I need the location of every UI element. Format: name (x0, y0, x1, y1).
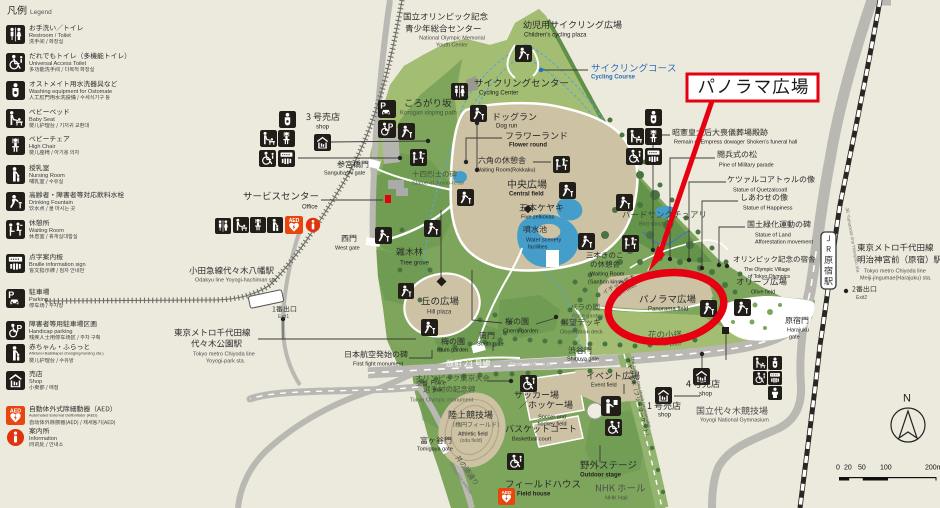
svg-text:Waiting Room: Waiting Room (29, 228, 64, 234)
svg-text:Information: Information (29, 436, 57, 442)
svg-text:Shop: Shop (29, 379, 42, 385)
svg-text:NHK Hall: NHK Hall (605, 495, 628, 501)
svg-text:Water scenery: Water scenery (526, 237, 562, 243)
svg-text:Tokyo metro Chiyoda line: Tokyo metro Chiyoda line (193, 351, 255, 357)
svg-text:Remain of Empress dowager Shok: Remain of Empress dowager Shoken's funer… (674, 139, 797, 145)
svg-text:Field house: Field house (517, 492, 551, 498)
svg-text:shop: shop (316, 125, 330, 131)
svg-text:gate: gate (789, 334, 800, 340)
svg-text:Plum garden: Plum garden (437, 347, 468, 353)
svg-text:First fight monument: First fight monument (353, 361, 404, 367)
svg-text:N: N (903, 393, 911, 405)
svg-text:Tree grove: Tree grove (400, 261, 429, 267)
svg-text:Police: Police (431, 380, 446, 386)
svg-text:Olive field: Olive field (751, 289, 775, 295)
svg-text:facilities: facilities (528, 244, 548, 250)
svg-text:Afforestation movement: Afforestation movement (755, 239, 813, 245)
svg-text:Observation deck: Observation deck (560, 329, 603, 335)
svg-text:Nursing Room: Nursing Room (29, 173, 65, 179)
svg-text:Outdoor stage: Outdoor stage (580, 473, 622, 479)
svg-text:Event field: Event field (591, 382, 617, 388)
svg-text:Athletic field: Athletic field (458, 431, 488, 437)
svg-text:(oda field): (oda field) (460, 438, 483, 444)
svg-text:Yoyogi-park sta.: Yoyogi-park sta. (206, 358, 246, 364)
svg-text:Tokyo metro Chiyoda line: Tokyo metro Chiyoda line (864, 268, 926, 274)
svg-text:Baby Seat: Baby Seat (29, 117, 55, 123)
svg-text:Five zelkovas: Five zelkovas (521, 214, 555, 220)
svg-text:0: 0 (836, 465, 840, 472)
svg-text:Dog run: Dog run (496, 124, 517, 130)
svg-text:West gate: West gate (335, 245, 360, 251)
svg-text:Legend: Legend (30, 9, 52, 16)
svg-text:20: 20 (844, 465, 852, 472)
svg-text:Soccer and: Soccer and (538, 414, 566, 420)
svg-text:Statue of Juyon-ressi: Statue of Juyon-ressi (412, 180, 464, 186)
svg-text:The Olympic Village: The Olympic Village (744, 267, 790, 273)
svg-text:Statue of Quetzalcoatl: Statue of Quetzalcoatl (733, 187, 787, 193)
svg-text:Statue of Land: Statue of Land (755, 232, 791, 238)
svg-text:Waiting Room(Rokkaku): Waiting Room(Rokkaku) (476, 167, 536, 173)
svg-text:Central field: Central field (509, 192, 544, 198)
svg-text:Office: Office (302, 205, 318, 211)
svg-text:Braille information sign: Braille information sign (29, 262, 86, 268)
svg-text:shop: shop (699, 392, 713, 398)
svg-text:Exit2: Exit2 (856, 295, 867, 301)
svg-text:Pine of Military parade: Pine of Military parade (719, 162, 774, 168)
svg-text:South gate: South gate (477, 341, 504, 347)
svg-text:Shibuya gate: Shibuya gate (567, 356, 599, 362)
svg-text:Yoyogi National Gymnasium: Yoyogi National Gymnasium (700, 417, 769, 423)
svg-text:Harajuku: Harajuku (787, 327, 809, 333)
svg-text:National Olympic Memorial: National Olympic Memorial (419, 35, 485, 41)
svg-text:Youth Center: Youth Center (436, 42, 468, 48)
svg-text:Korogari sloping path: Korogari sloping path (400, 111, 457, 117)
svg-text:High Chair: High Chair (29, 144, 56, 150)
svg-text:Restroom / Toilet: Restroom / Toilet (29, 33, 71, 39)
svg-text:Odakyu line Yoyogi-hachiman st: Odakyu line Yoyogi-hachiman sta. (195, 277, 278, 283)
svg-text:Automated External Defibrillat: Automated External Defibrillator (AED) (29, 413, 98, 418)
svg-text:Cherry garden: Cherry garden (503, 328, 538, 334)
svg-text:Cycling Course: Cycling Course (591, 75, 636, 81)
svg-text:Flower round: Flower round (509, 143, 547, 149)
svg-text:Ensuikaido Route 23: Ensuikaido Route 23 (510, 362, 552, 367)
svg-text:Washing equipment for Ostomate: Washing equipment for Ostomate (29, 89, 112, 95)
svg-text:Handicap parking: Handicap parking (29, 329, 73, 335)
svg-text:Box: Box (433, 387, 443, 393)
svg-text:Sangubashi gate: Sangubashi gate (324, 170, 365, 176)
svg-text:Children's cycling plaza: Children's cycling plaza (524, 33, 587, 39)
svg-text:Rose garden: Rose garden (572, 313, 604, 319)
svg-text:Afixture+Babdiaper changing/nu: Afixture+Babdiaper changing/nursing sta.… (29, 351, 104, 356)
svg-text:Waiting Room: Waiting Room (590, 271, 625, 277)
svg-text:Exit1: Exit1 (278, 314, 289, 320)
svg-text:200m: 200m (925, 465, 940, 472)
svg-text:Universal Access Toilet: Universal Access Toilet (29, 61, 87, 67)
svg-text:50: 50 (858, 465, 866, 472)
svg-text:Tomigaya gate: Tomigaya gate (417, 446, 453, 452)
svg-text:Basketball court: Basketball court (512, 436, 552, 442)
svg-text:Tokyo Olympic monument: Tokyo Olympic monument (410, 397, 474, 403)
svg-text:100: 100 (880, 465, 892, 472)
svg-text:shop: shop (658, 413, 672, 419)
svg-text:Parking: Parking (29, 297, 48, 303)
svg-text:Statue of Happiness: Statue of Happiness (743, 205, 793, 211)
svg-text:Meiji-jingumae(Harajuku) sta.: Meiji-jingumae(Harajuku) sta. (860, 275, 932, 281)
svg-text:Hill plaza: Hill plaza (427, 310, 452, 316)
svg-text:Cycling Center: Cycling Center (479, 91, 518, 97)
svg-text:Drinking Fountain: Drinking Fountain (29, 200, 73, 206)
svg-text:Panorama field: Panorama field (648, 307, 688, 313)
